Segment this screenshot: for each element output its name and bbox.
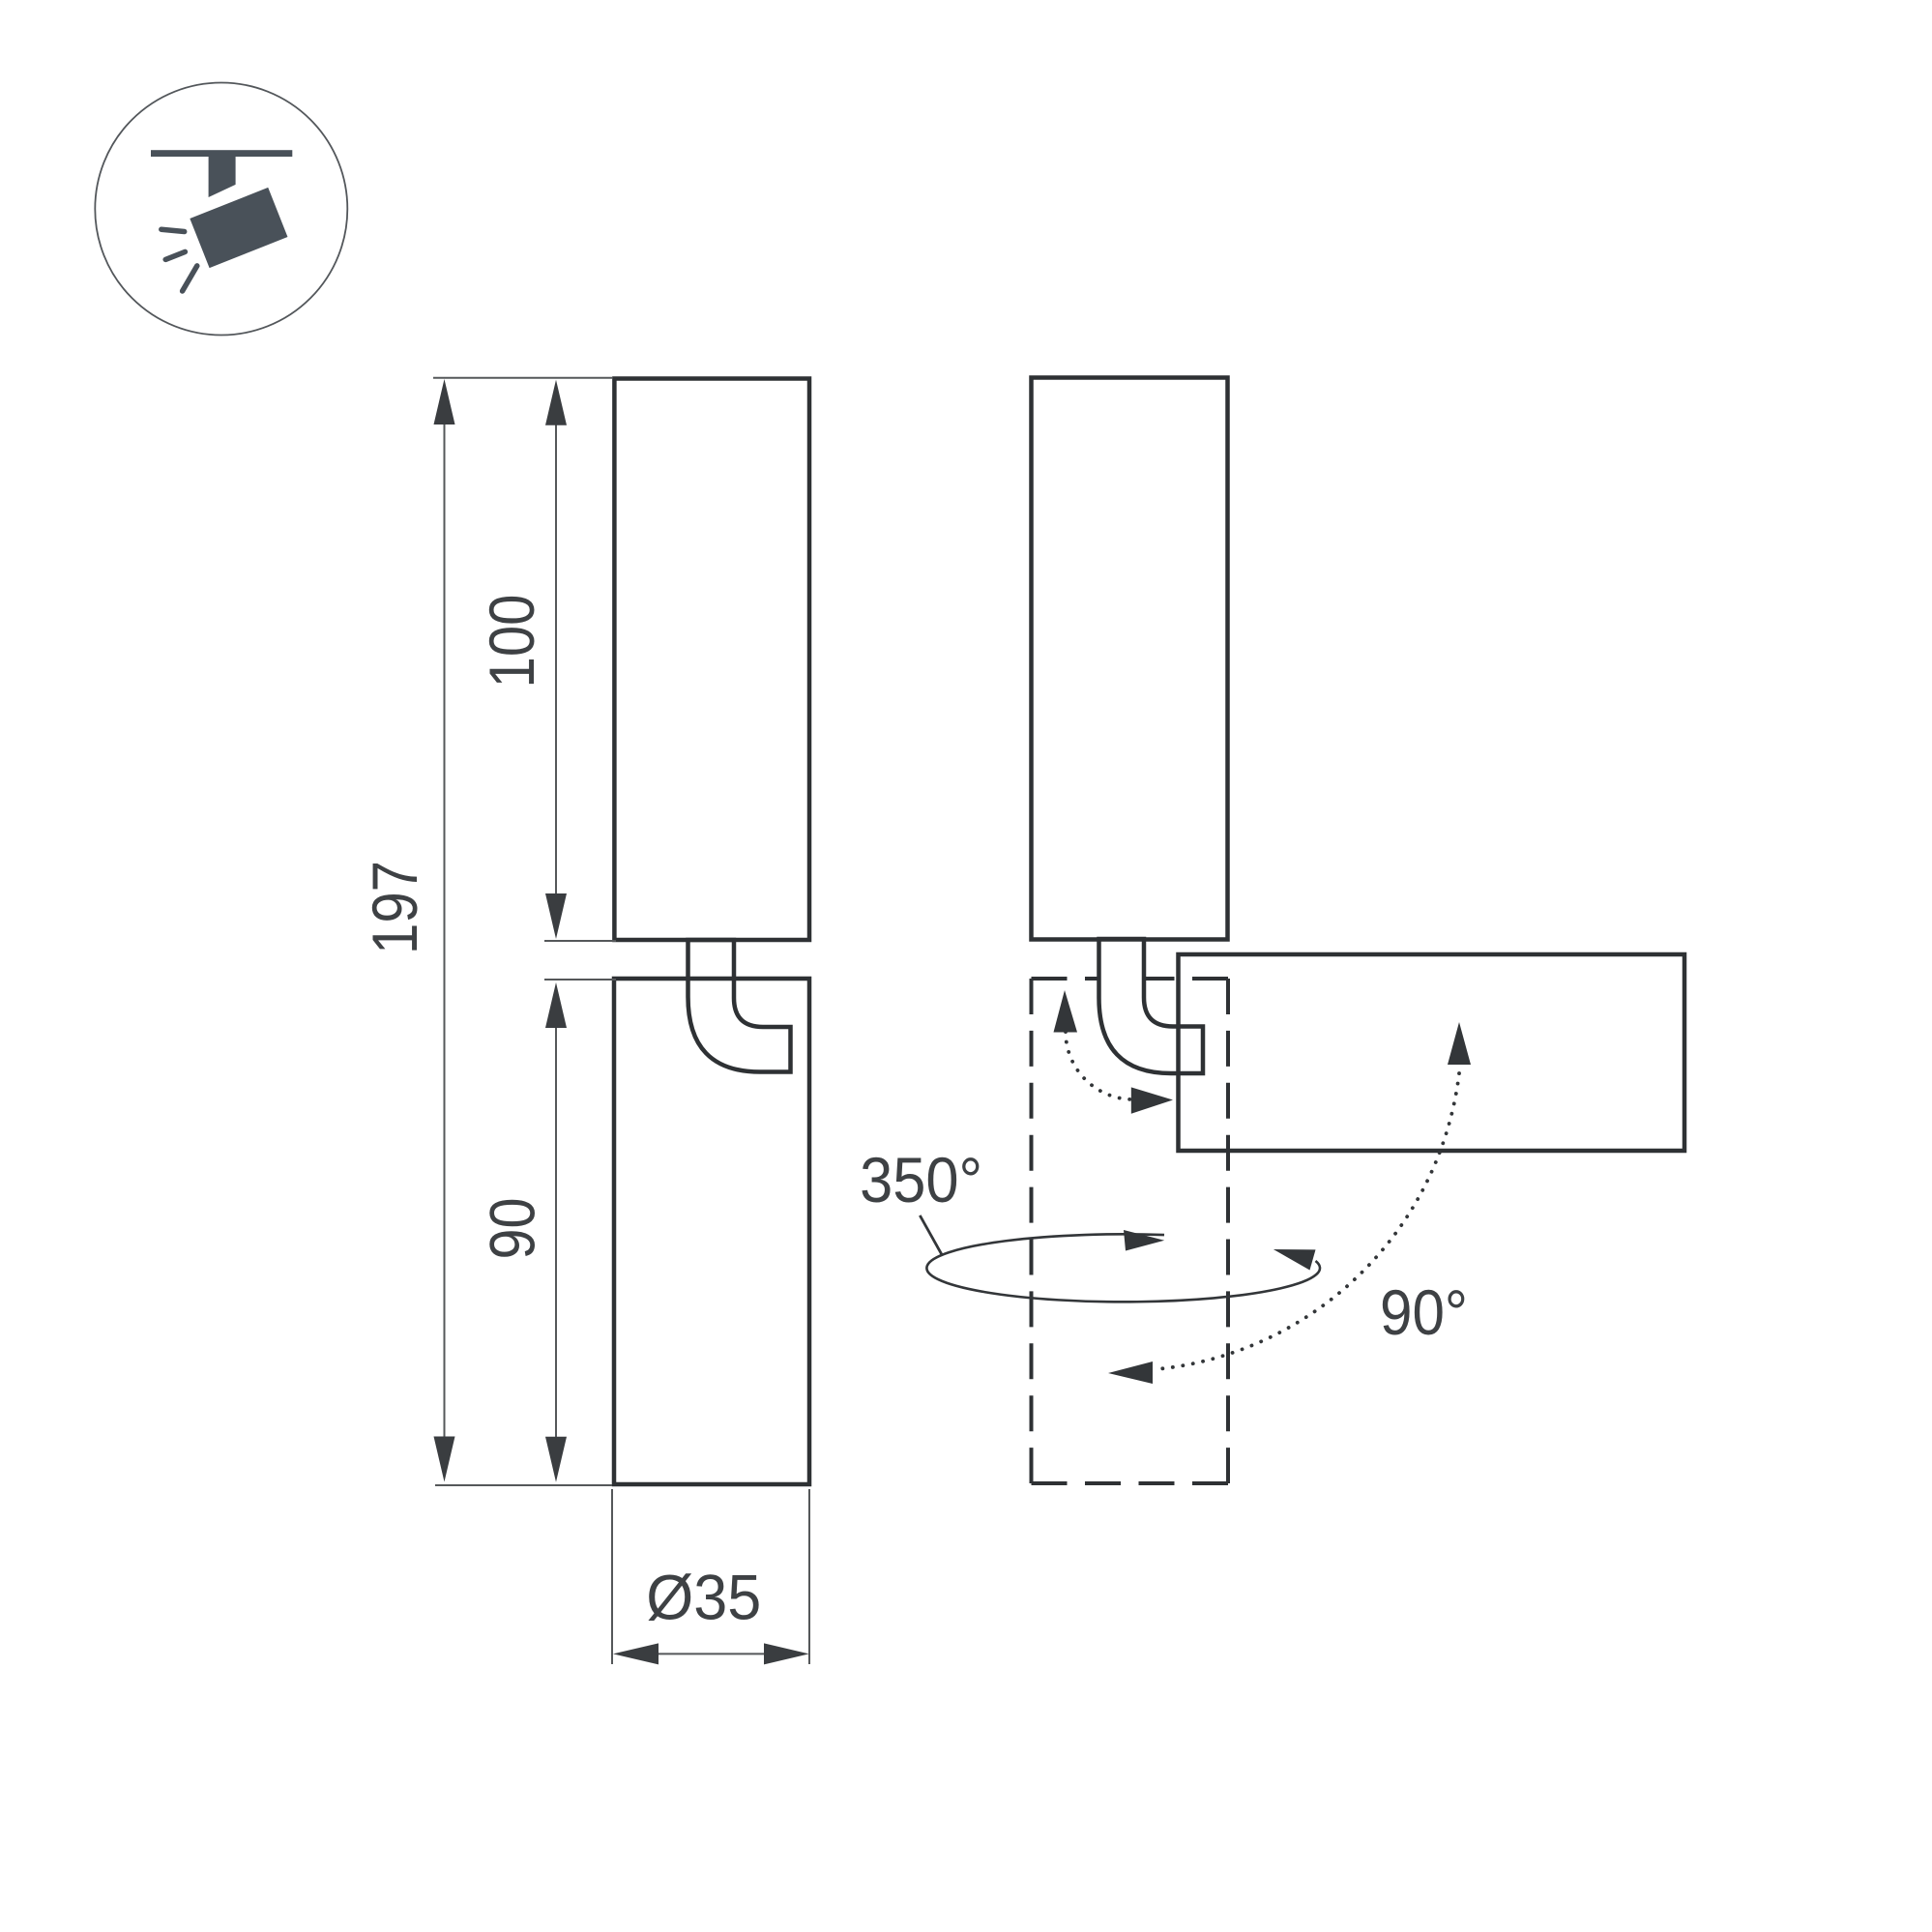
svg-text:100: 100 (476, 595, 547, 688)
svg-text:350°: 350° (860, 1144, 982, 1215)
svg-text:Ø35: Ø35 (646, 1562, 761, 1633)
svg-text:90°: 90° (1380, 1276, 1468, 1348)
svg-text:197: 197 (359, 861, 430, 954)
svg-text:90: 90 (477, 1198, 548, 1260)
